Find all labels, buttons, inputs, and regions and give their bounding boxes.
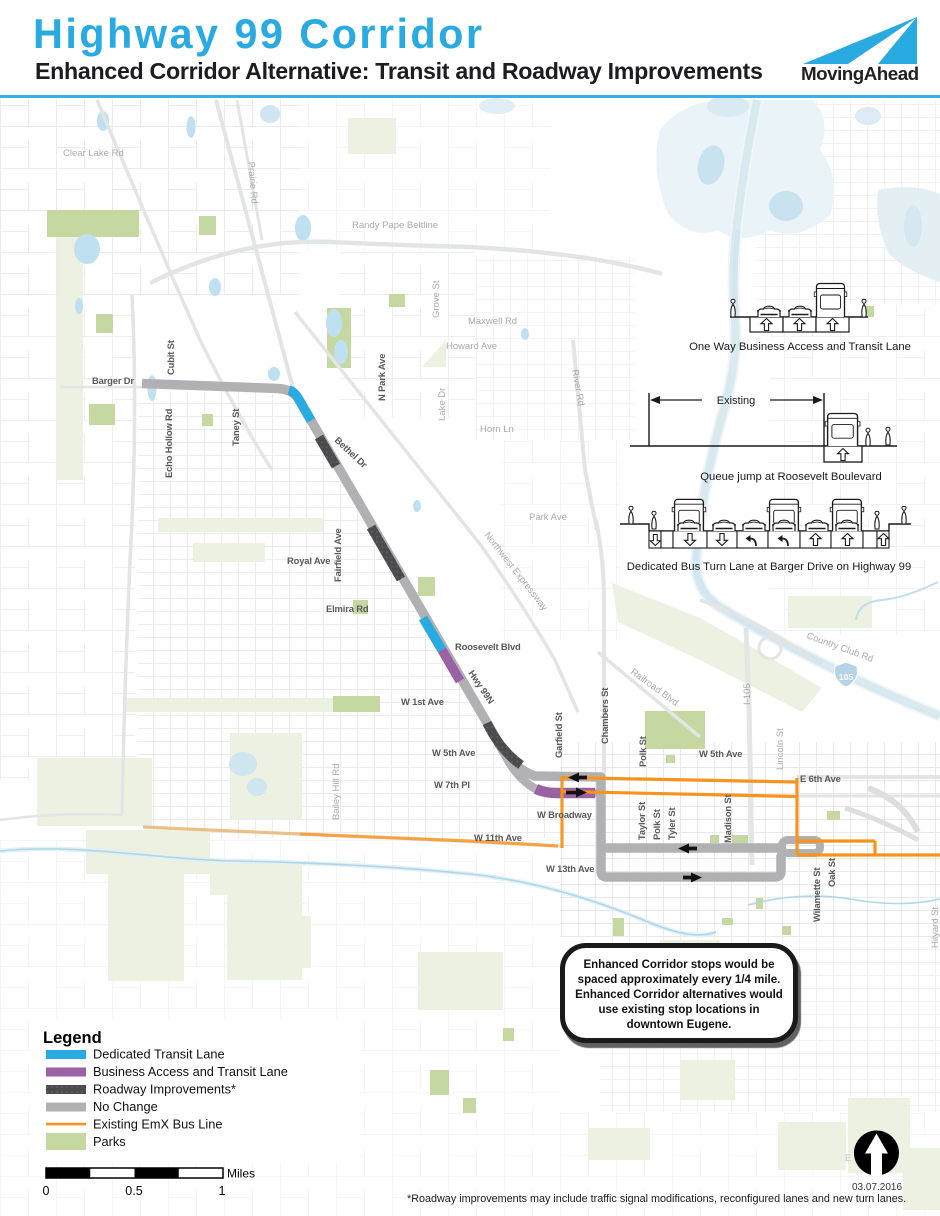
svg-text:Oak St: Oak St <box>826 858 837 887</box>
svg-text:Taylor St: Taylor St <box>636 802 647 840</box>
svg-text:Grove St: Grove St <box>431 280 442 318</box>
svg-text:0.5: 0.5 <box>125 1184 142 1198</box>
svg-text:W 5th Ave: W 5th Ave <box>432 747 475 758</box>
svg-text:Existing EmX Bus Line: Existing EmX Bus Line <box>93 1117 222 1132</box>
svg-text:Dedicated Transit Lane: Dedicated Transit Lane <box>93 1047 225 1062</box>
svg-text:Business Access and Transit La: Business Access and Transit Lane <box>93 1064 288 1079</box>
svg-text:1: 1 <box>219 1184 226 1198</box>
svg-text:Legend: Legend <box>43 1029 102 1047</box>
svg-text:Polk St: Polk St <box>637 736 648 767</box>
svg-text:Tyler St: Tyler St <box>666 807 677 840</box>
svg-text:W 5th Ave: W 5th Ave <box>699 748 742 759</box>
svg-text:N Park Ave: N Park Ave <box>376 354 387 401</box>
svg-text:Miles: Miles <box>227 1167 255 1181</box>
svg-text:Queue jump at Roosevelt Boulev: Queue jump at Roosevelt Boulevard <box>700 471 881 483</box>
svg-text:0: 0 <box>43 1184 50 1198</box>
svg-text:Chambers St: Chambers St <box>599 688 610 744</box>
svg-text:Taney St: Taney St <box>230 409 241 446</box>
svg-text:I-105: I-105 <box>742 683 753 705</box>
svg-text:Railroad Blvd: Railroad Blvd <box>628 667 680 709</box>
svg-text:Elmira Rd: Elmira Rd <box>326 603 369 614</box>
svg-text:Echo Hollow Rd: Echo Hollow Rd <box>163 408 174 478</box>
svg-text:Bailey Hill Rd: Bailey Hill Rd <box>331 764 342 821</box>
svg-text:Lincoln St: Lincoln St <box>775 728 786 770</box>
svg-text:Fairfield Ave: Fairfield Ave <box>332 528 343 582</box>
svg-text:Wilamette St: Wilamette St <box>811 868 822 922</box>
svg-text:Parks: Parks <box>93 1134 126 1149</box>
svg-text:Maxwell Rd: Maxwell Rd <box>468 316 517 327</box>
svg-text:W 11th Ave: W 11th Ave <box>474 832 522 843</box>
svg-text:Garfield St: Garfield St <box>553 712 564 758</box>
svg-text:Horn Ln: Horn Ln <box>480 424 514 435</box>
svg-text:Barger Dr: Barger Dr <box>92 375 134 386</box>
svg-text:Existing: Existing <box>717 395 756 407</box>
svg-text:105: 105 <box>839 672 853 682</box>
svg-text:W 7th Pl: W 7th Pl <box>434 779 470 790</box>
svg-text:Lake Dr: Lake Dr <box>437 388 448 421</box>
svg-text:Hilyard St: Hilyard St <box>930 906 940 948</box>
svg-text:Cubit St: Cubit St <box>165 340 176 375</box>
svg-text:Roosevelt Blvd: Roosevelt Blvd <box>455 641 521 652</box>
svg-text:E 6th Ave: E 6th Ave <box>800 773 841 784</box>
svg-text:W Broadway: W Broadway <box>537 809 593 820</box>
svg-text:One Way Business Access and Tr: One Way Business Access and Transit Lane <box>689 341 911 353</box>
svg-text:Park Ave: Park Ave <box>529 512 567 523</box>
svg-text:Madison St: Madison St <box>722 794 733 843</box>
svg-text:No Change: No Change <box>93 1099 158 1114</box>
svg-text:Clear Lake Rd: Clear Lake Rd <box>63 148 124 159</box>
svg-text:Royal Ave: Royal Ave <box>287 555 330 566</box>
svg-text:W 13th Ave: W 13th Ave <box>546 863 594 874</box>
svg-text:Howard Ave: Howard Ave <box>446 341 497 352</box>
svg-text:Roadway Improvements*: Roadway Improvements* <box>93 1082 236 1097</box>
svg-text:Polk St: Polk St <box>651 809 662 840</box>
svg-text:Randy Pape Beltline: Randy Pape Beltline <box>352 220 438 231</box>
svg-text:Dedicated Bus Turn Lane at Bar: Dedicated Bus Turn Lane at Barger Drive … <box>627 561 911 573</box>
svg-text:W 1st Ave: W 1st Ave <box>401 696 444 707</box>
